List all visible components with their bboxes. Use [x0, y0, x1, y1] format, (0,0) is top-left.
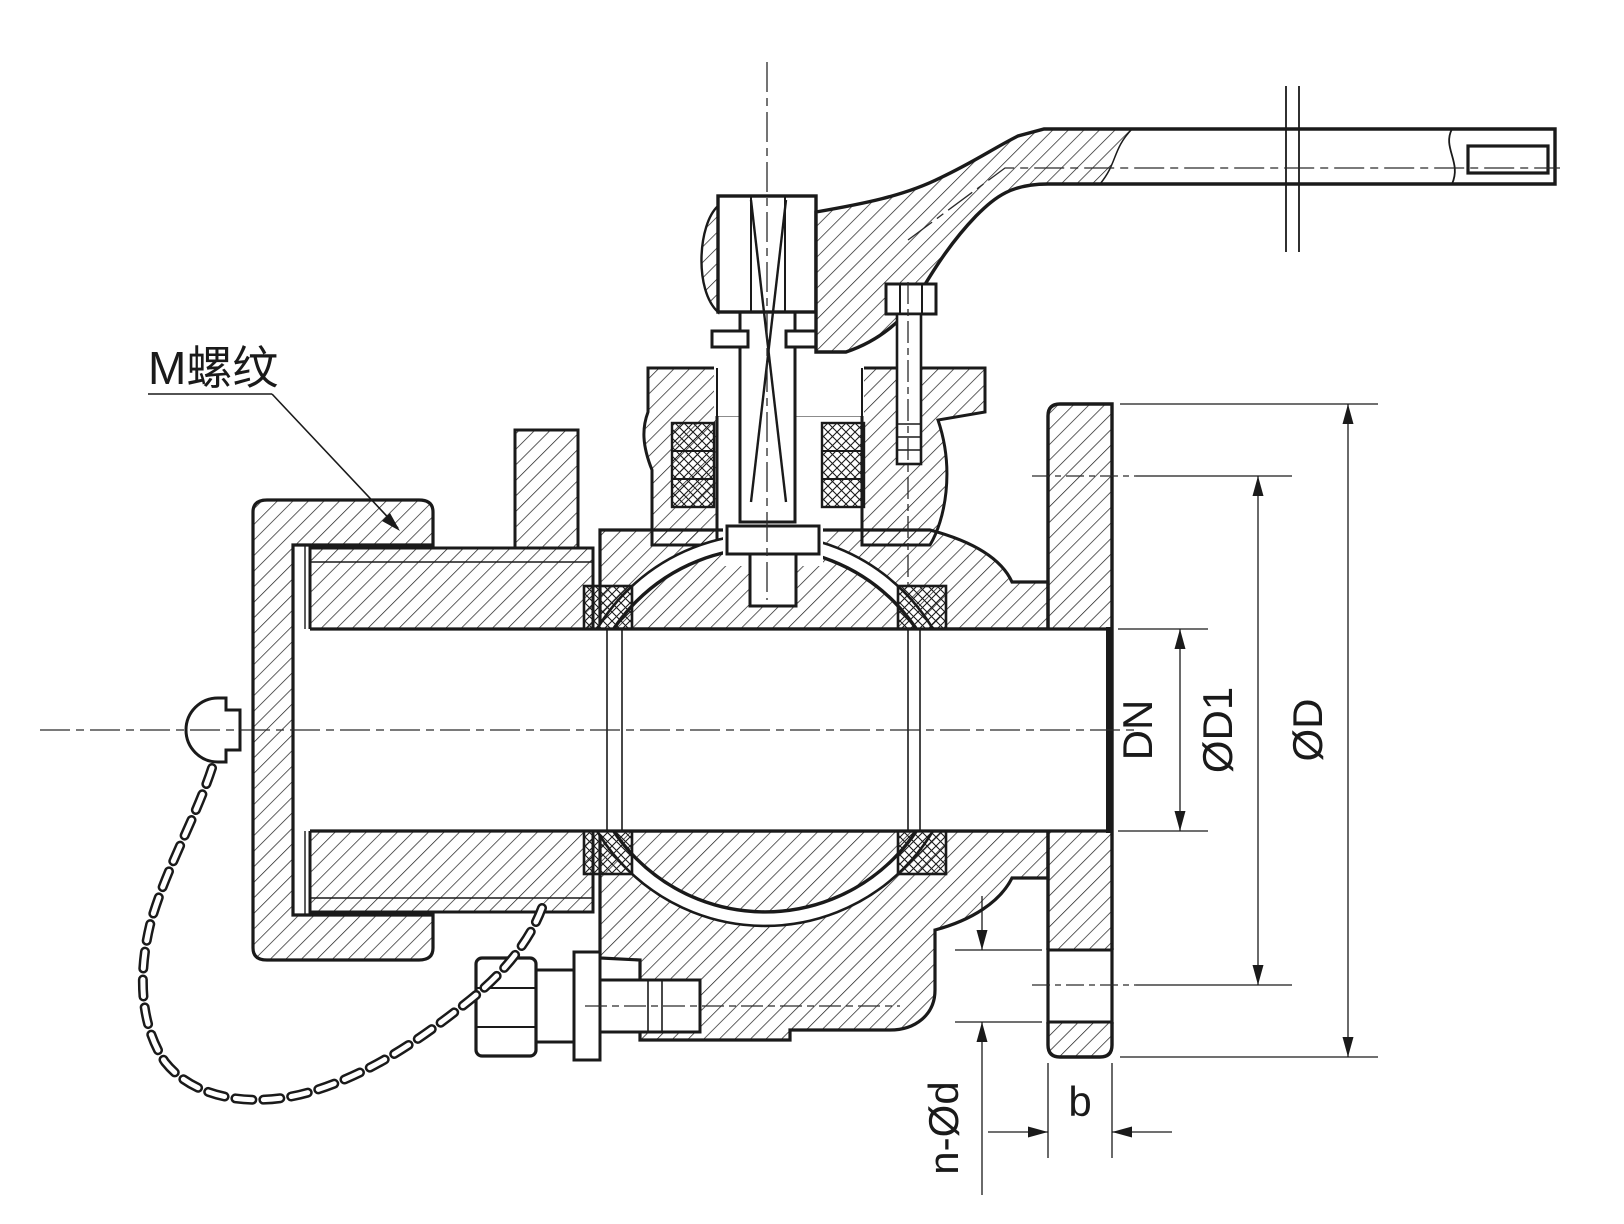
seat-bottom-right	[898, 831, 946, 874]
dim-label-bolt-holes: n-Ød	[920, 1081, 967, 1174]
drain-hex-head	[476, 958, 536, 1056]
dim-label-d: ØD	[1284, 699, 1331, 762]
handle-grip-end	[1468, 146, 1548, 173]
packing-rings-right	[822, 423, 864, 507]
lock-washer-left	[712, 331, 748, 347]
stem-tee	[727, 526, 819, 554]
valve-section-drawing: DN ØD1 ØD n-Ød b M螺纹	[0, 0, 1624, 1224]
stem-tang	[750, 554, 796, 606]
dim-label-dn: DN	[1114, 700, 1161, 761]
seat-top-left	[584, 586, 632, 629]
seat-top-right	[898, 586, 946, 629]
drawing-page: DN ØD1 ØD n-Ød b M螺纹	[0, 0, 1624, 1224]
stop-washer	[701, 206, 718, 312]
bolt-shank	[897, 314, 921, 464]
dim-label-d1: ØD1	[1194, 687, 1241, 773]
thread-note-label: M螺纹	[148, 342, 278, 394]
bolt-head	[886, 284, 936, 314]
dim-label-thickness: b	[1068, 1078, 1091, 1125]
bolt-hole	[1046, 950, 1114, 1022]
packing-rings-left	[672, 423, 714, 507]
seat-bottom-left	[584, 831, 632, 874]
